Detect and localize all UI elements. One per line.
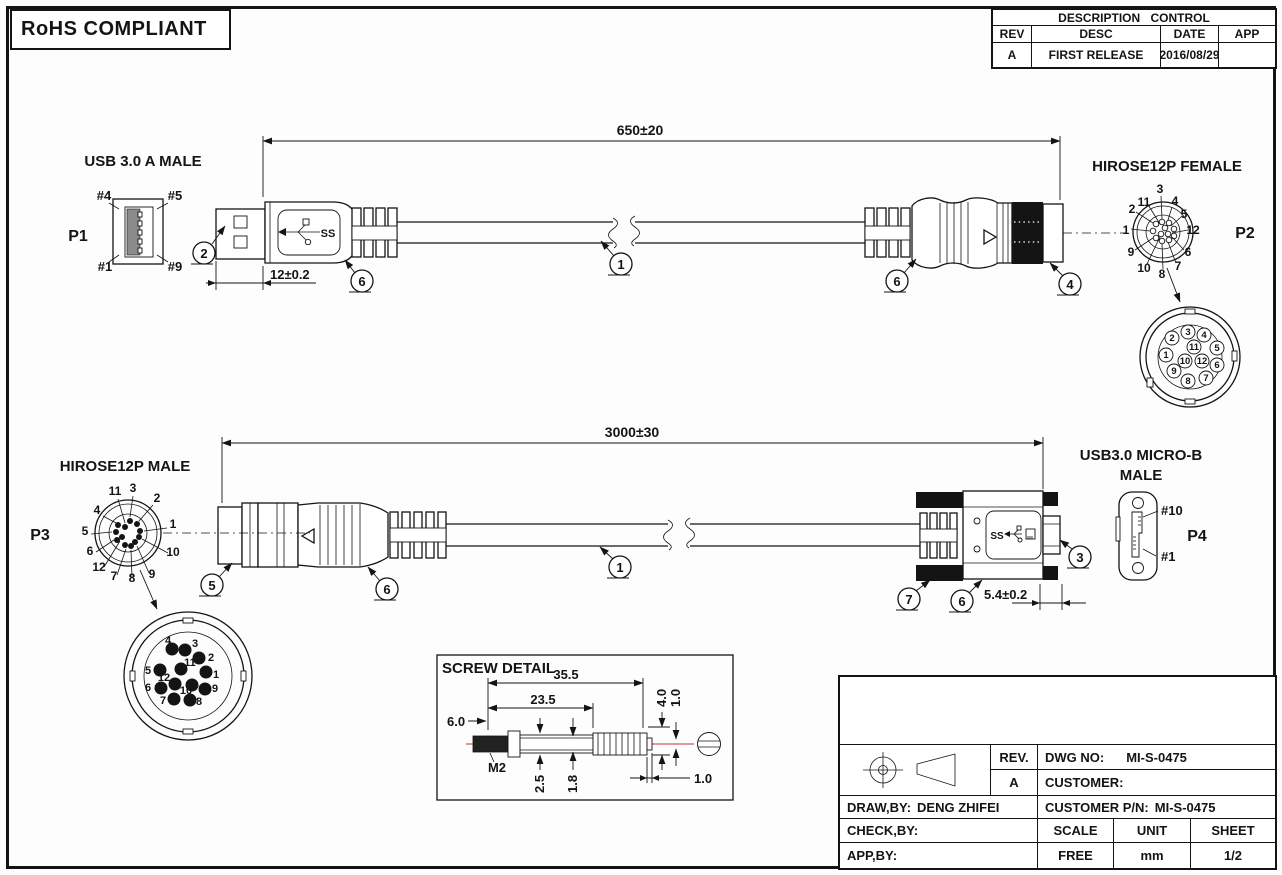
hirose-male-pinout: HIROSE12P MALE P3 11 3 2 4 1 5 10 [30,458,190,609]
p2-face-pin: 3 [1185,327,1190,338]
balloon-3: 3 [1060,540,1091,568]
screw-detail-title: SCREW DETAIL [442,660,555,677]
rev-row-rev: A [993,43,1031,67]
draw-by-label: DRAW,BY: [847,800,911,815]
p3-face-pin: 4 [165,635,172,647]
p3-face-pin: 8 [196,696,202,708]
dwg-no-value: MI-S-0475 [1126,750,1187,765]
p2-pin-label: 12 [1186,223,1200,237]
dim-54-text: 5.4±0.2 [984,587,1027,602]
p1-pin4-label: #4 [97,188,112,203]
app-by-label: APP,BY: [847,848,897,863]
p3-pin-label: 7 [111,569,118,583]
p2-face-pin: 10 [1180,356,1191,367]
p1-pin1-label: #1 [98,259,112,274]
p3-pin-label: 5 [82,524,89,538]
balloon-7-num: 7 [905,592,912,607]
p3-pin-label: 8 [129,571,136,585]
p4-pin1-label: #1 [1161,549,1175,564]
rev-row-desc: FIRST RELEASE [1032,43,1160,67]
dim-12-text: 12±0.2 [270,267,310,282]
unit-value: mm [1114,843,1190,868]
customer-pn-label: CUSTOMER P/N: [1045,800,1149,815]
p2-pin-label: 1 [1123,223,1130,237]
usb-a-connector-face: USB 3.0 A MALE P1 #4 #5 #1 #9 [68,153,201,274]
p2-face-pin: 4 [1201,330,1207,341]
hirose-female-pinout: HIROSE12P FEMALE P2 11 3 4 2 5 12 1 [1092,158,1255,302]
balloon-6-d: 6 [949,580,982,612]
p2-title: HIROSE12P FEMALE [1092,158,1242,175]
rohs-compliance-badge: RoHS COMPLIANT [10,9,231,50]
rohs-label: RoHS COMPLIANT [21,18,207,41]
hirose-female-enlarged-face: 2 3 4 11 1 5 10 12 9 6 8 7 [1140,307,1240,407]
dim-10-slot-text: 1.0 [668,689,683,707]
balloon-6d-num: 6 [958,594,965,609]
rev-table-col-app: APP [1219,26,1275,42]
p1-ref: P1 [68,228,88,245]
balloon-5: 5 [199,563,232,596]
dim-12: 12±0.2 [206,261,316,290]
title-block-empty-area [840,677,1275,744]
projection-symbol-cell [840,745,990,795]
p2-pin-label: 7 [1175,259,1182,273]
p3-ref: P3 [30,527,50,544]
hirose-female-plug [865,198,1127,268]
check-by-cell: CHECK,BY: [840,819,1037,842]
rev-table-title: DESCRIPTION CONTROL [993,10,1275,25]
p2-face-pin: 6 [1214,360,1219,371]
dim-10-tip-text: 1.0 [694,771,712,786]
hirose-male-plug [163,503,446,567]
balloon-6-a: 6 [345,260,373,292]
p3-pin-label: 9 [149,567,156,581]
cable-a2 [446,518,920,550]
strain-relief-a1-left [352,208,397,257]
rev-table-col-date: DATE [1161,26,1218,42]
customer-label: CUSTOMER: [1045,775,1123,790]
customer-pn-value: MI-S-0475 [1155,800,1216,815]
p3-face-pin: 7 [160,695,166,707]
balloon-4: 4 [1050,263,1081,295]
screw-end-view [698,733,721,756]
p3-pin-label: 2 [154,491,161,505]
p2-face-pin: 12 [1197,356,1208,367]
p1-pin9-label: #9 [168,259,182,274]
p4-pin10-label: #10 [1161,503,1183,518]
dwg-no-label: DWG NO: [1045,750,1104,765]
usb-ss-logo-text: SS [990,531,1004,542]
balloon-6-c: 6 [368,567,398,600]
p2-face-pin: 11 [1189,342,1200,353]
balloon-1-b: 1 [600,547,631,578]
p2-face-pin: 9 [1171,366,1176,377]
scale-label: SCALE [1038,819,1113,842]
p4-ref: P4 [1187,528,1207,545]
p3-face-pin: 5 [145,665,151,677]
p3-face-pin: 6 [145,682,151,694]
p3-face-pin: 11 [184,657,196,669]
balloon-2-num: 2 [200,246,207,261]
dim-3000-text: 3000±30 [605,424,660,440]
p3-face-pin: 12 [158,672,170,684]
p2-face-pin: 5 [1214,343,1220,354]
screw-detail: SCREW DETAIL 35.5 23.5 6.0 M2 [437,655,733,800]
draw-by-cell: DRAW,BY:DENG ZHIFEI [840,796,1037,818]
usb-a-plug-side-view: SS [216,202,356,263]
balloon-3-num: 3 [1076,550,1083,565]
p3-pin-label: 6 [87,544,94,558]
balloon-1a-num: 1 [617,257,624,272]
p3-pin-label: 11 [109,484,122,498]
p2-face-pin: 1 [1163,350,1169,361]
rev-table-col-desc: DESC [1032,26,1160,42]
p2-face-pin: 8 [1185,376,1190,387]
p2-pin-label: 6 [1185,245,1192,259]
balloon-6-b: 6 [884,259,916,292]
thread-spec-text: M2 [488,760,506,775]
dim-60-text: 6.0 [447,714,465,729]
third-angle-projection-symbol [855,748,975,792]
rev-label: REV. [991,745,1037,769]
p2-pin-label: 9 [1128,245,1135,259]
dim-650-text: 650±20 [617,122,664,138]
p2-pin-label: 5 [1181,207,1188,221]
thumbscrew-top [916,492,963,508]
dwg-no-cell: DWG NO:MI-S-0475 [1038,745,1275,769]
p2-face-pin: 2 [1169,333,1174,344]
app-by-cell: APP,BY: [840,843,1037,868]
description-control-table: DESCRIPTION CONTROL REV DESC DATE APP A … [991,8,1277,69]
drawing-sheet: USB 3.0 A MALE P1 #4 #5 #1 #9 [0,0,1282,875]
dim-18-text: 1.8 [565,775,580,793]
rev-row-date: 2016/08/29 [1161,43,1218,67]
dim-3000: 3000±30 [222,424,1043,503]
p2-face-pin: 7 [1203,373,1208,384]
p3-title: HIROSE12P MALE [60,458,191,475]
check-by-label: CHECK,BY: [847,823,918,838]
p4-title-line1: USB3.0 MICRO-B [1080,447,1203,464]
p2-pin-label: 8 [1159,267,1166,281]
balloon-7: 7 [896,580,930,610]
cable-a1 [397,216,866,248]
sheet-label: SHEET [1191,819,1275,842]
balloon-1-a: 1 [601,241,632,275]
p2-pin-label: 3 [1157,182,1164,196]
balloon-5-num: 5 [208,578,215,593]
balloon-1b-num: 1 [616,560,623,575]
balloon-4-num: 4 [1066,277,1074,292]
p3-face-pin: 9 [212,683,218,695]
unit-label: UNIT [1114,819,1190,842]
p4-title-line2: MALE [1120,467,1163,484]
p1-pin5-label: #5 [168,188,182,203]
thumbscrew-bottom [916,565,963,581]
usb-a-title: USB 3.0 A MALE [84,153,201,170]
p3-face-pin: 10 [180,685,192,697]
microb-tip [1043,516,1060,554]
balloon-6c-num: 6 [383,582,390,597]
screw-knurled-head [593,733,647,755]
scale-value: FREE [1038,843,1113,868]
customer-pn-cell: CUSTOMER P/N:MI-S-0475 [1038,796,1275,818]
knurled-ring [1012,202,1043,264]
dim-235-text: 23.5 [530,692,555,707]
dim-25-text: 2.5 [532,775,547,793]
p2-pin-label: 2 [1129,202,1136,216]
screw-thread [473,736,508,752]
p2-pin-label: 11 [1138,195,1151,209]
usb-ss-logo-text: SS [321,228,336,240]
rev-row-app [1219,43,1275,67]
p3-face-pin: 1 [213,669,219,681]
dim-5-4: 5.4±0.2 [984,584,1086,610]
rev-value: A [991,770,1037,795]
sheet-value: 1/2 [1191,843,1275,868]
hirose-male-enlarged-face: 4 3 2 11 5 1 12 10 6 9 7 8 [124,612,252,740]
p2-ref: P2 [1235,225,1255,242]
p3-pin-label: 3 [130,481,137,495]
rev-table-col-rev: REV [993,26,1031,42]
p3-pin-label: 4 [94,503,101,517]
p3-pin-label: 10 [166,545,180,559]
p3-pin-label: 1 [170,517,177,531]
p2-pin-label: 4 [1172,194,1179,208]
usb-microb-face: USB3.0 MICRO-B MALE #10 #1 P4 [1080,447,1207,580]
dim-355-text: 35.5 [553,667,578,682]
balloon-6a-num: 6 [358,274,365,289]
customer-cell: CUSTOMER: [1038,770,1275,795]
dim-40-text: 4.0 [654,689,669,707]
title-block: REV. DWG NO:MI-S-0475 A CUSTOMER: DRAW,B… [838,675,1277,870]
p2-pin-label: 10 [1137,261,1151,275]
p3-face-pin: 2 [208,652,214,664]
assembly1: USB 3.0 A MALE P1 #4 #5 #1 #9 [68,122,1255,407]
balloon-6b-num: 6 [893,274,900,289]
usb-microb-plug: SS [916,491,1060,581]
p3-pin-label: 12 [92,560,106,574]
p3-face-pin: 3 [192,638,198,650]
dim-650: 650±20 [263,122,1060,200]
draw-by-value: DENG ZHIFEI [917,800,999,815]
